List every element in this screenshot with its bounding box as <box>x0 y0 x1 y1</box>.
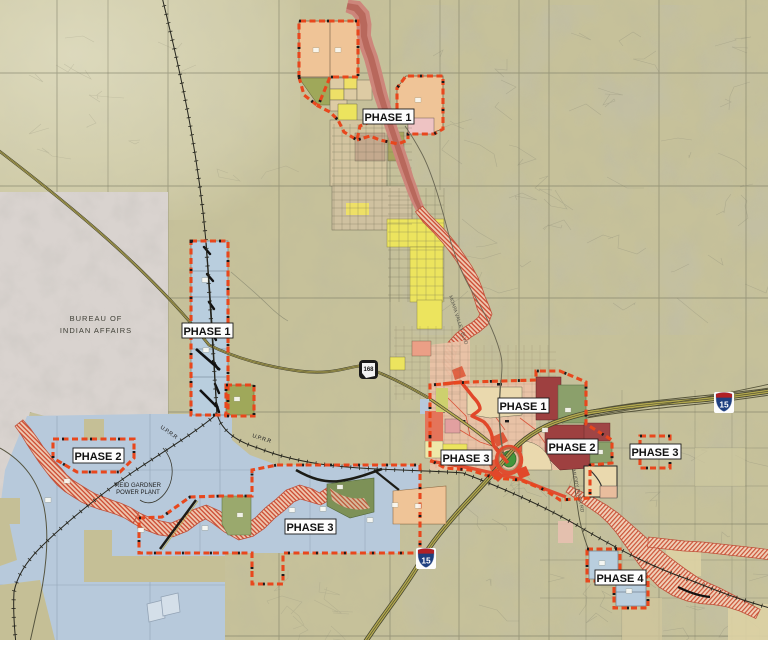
svg-text:POWER PLANT: POWER PLANT <box>116 490 160 496</box>
svg-text:REID GARDNER: REID GARDNER <box>115 483 162 489</box>
svg-text:PHASE 2: PHASE 2 <box>74 451 121 463</box>
svg-text:168: 168 <box>363 367 374 373</box>
svg-text:PHASE 3: PHASE 3 <box>442 453 489 465</box>
svg-text:BUREAU OF: BUREAU OF <box>70 314 123 323</box>
svg-text:PHASE 1: PHASE 1 <box>183 326 230 338</box>
svg-text:PHASE 2: PHASE 2 <box>548 442 595 454</box>
svg-text:PHASE 1: PHASE 1 <box>499 401 546 413</box>
svg-text:INDIAN AFFAIRS: INDIAN AFFAIRS <box>60 326 132 335</box>
svg-text:PHASE 3: PHASE 3 <box>631 447 678 459</box>
svg-text:15: 15 <box>421 556 431 566</box>
svg-text:15: 15 <box>719 400 729 410</box>
svg-text:PHASE 4: PHASE 4 <box>596 573 644 585</box>
svg-text:PHASE 3: PHASE 3 <box>286 522 333 534</box>
svg-text:PHASE 1: PHASE 1 <box>364 112 411 124</box>
